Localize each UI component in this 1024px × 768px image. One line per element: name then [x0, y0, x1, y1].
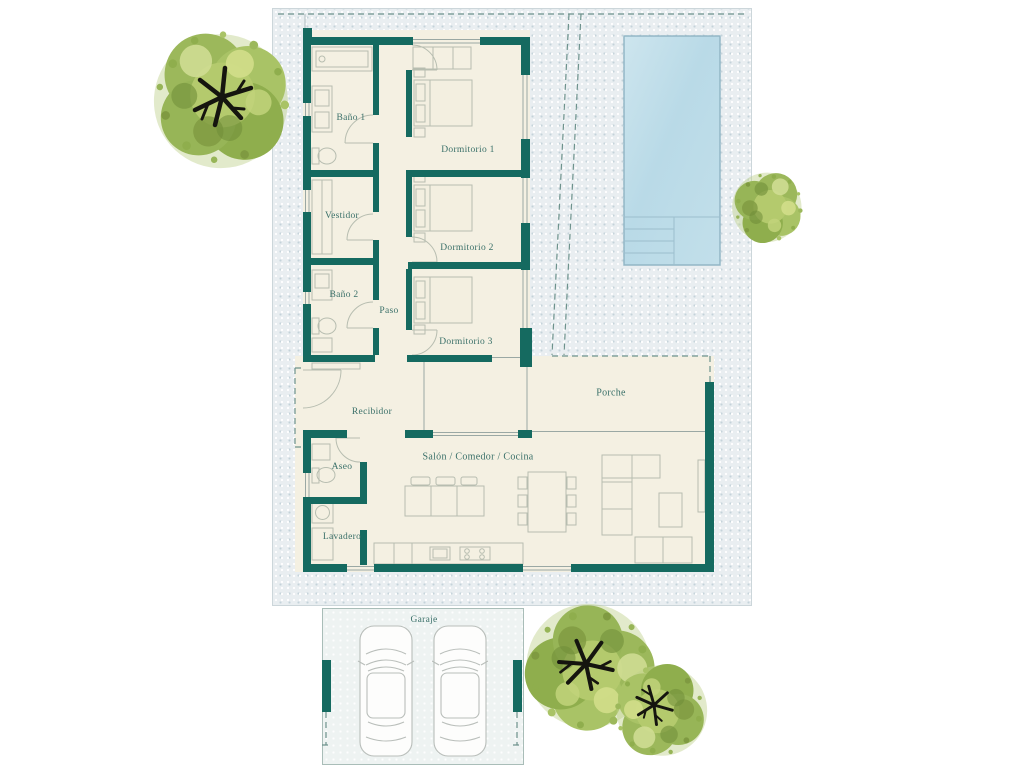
room-label-recibidor: Recibidor — [352, 407, 392, 417]
floor-plan-canvas: Baño 1 Dormitorio 1 Vestidor Dormitorio … — [0, 0, 1024, 768]
room-label-salon-comedor-cocina: Salón / Comedor / Cocina — [422, 452, 533, 463]
garage-structure — [322, 626, 522, 756]
room-label-dormitorio-2: Dormitorio 2 — [440, 243, 493, 253]
room-label-vestidor: Vestidor — [325, 211, 359, 221]
room-label-garaje: Garaje — [410, 615, 437, 625]
room-label-banio-1: Baño 1 — [337, 113, 366, 123]
room-label-aseo: Aseo — [332, 462, 353, 472]
floor-plan-drawing — [0, 0, 1024, 768]
room-label-banio-2: Baño 2 — [330, 290, 359, 300]
car-icon — [358, 626, 488, 756]
tree-icon — [139, 18, 303, 183]
room-label-dormitorio-1: Dormitorio 1 — [441, 145, 494, 155]
room-label-paso: Paso — [379, 306, 398, 316]
room-label-lavadero: Lavadero — [323, 532, 361, 542]
tree-icon — [727, 167, 808, 248]
room-label-porche: Porche — [596, 388, 626, 399]
room-label-dormitorio-3: Dormitorio 3 — [439, 337, 492, 347]
swimming-pool — [624, 36, 720, 265]
